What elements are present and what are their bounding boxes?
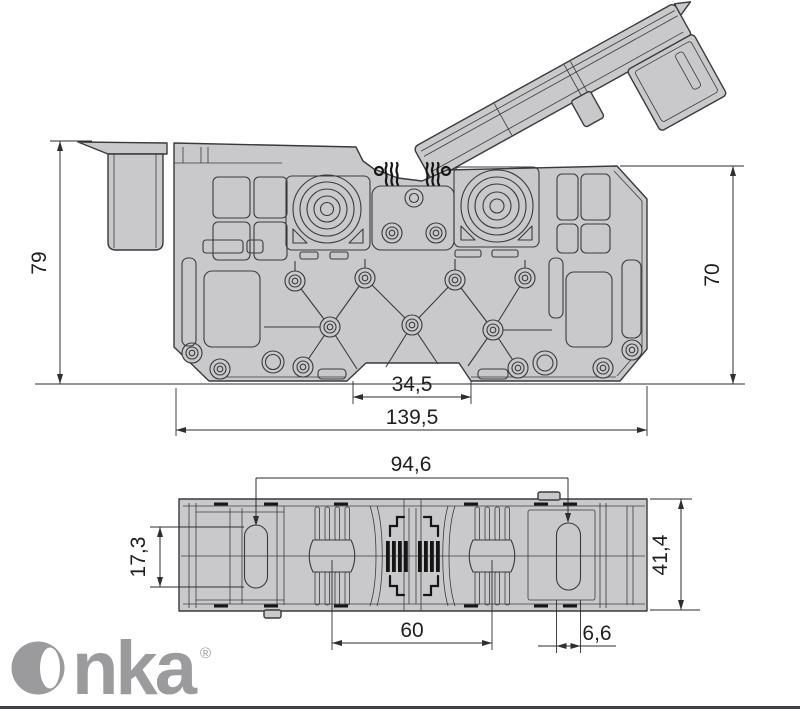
bottom-tab [264,610,281,618]
dimension-label: 41,4 [649,534,672,575]
dimension-label: 6,6 [582,622,611,645]
mounting-foot [108,154,163,250]
brand-logo: Onka nka ® [0,626,211,709]
registered-trademark: ® [200,645,211,662]
logo-letters: nka [72,626,198,709]
technical-drawing-page: 79 70 34,5 139,5 94,6 17,3 41 [0,0,800,709]
bottom-outline [179,499,647,611]
side-view [78,0,739,381]
dimension-41-4: 41,4 [649,499,700,610]
housing-outline [174,143,647,381]
dimension-label: 34,5 [392,373,433,396]
bottom-view [179,492,647,618]
dimension-79: 79 [28,141,92,384]
dimension-34-5: 34,5 [353,373,471,404]
terminal-block-dimension-drawing: 79 70 34,5 139,5 94,6 17,3 41 [0,0,800,709]
dimension-label: 79 [28,251,51,274]
dimension-label: 17,3 [127,537,150,578]
dimension-label: 60 [400,619,423,642]
mounting-flange [78,142,167,154]
dimension-label: 94,6 [391,453,432,476]
dimension-label: 70 [701,263,724,286]
dimension-label: 139,5 [386,406,439,429]
top-tab [538,492,560,500]
